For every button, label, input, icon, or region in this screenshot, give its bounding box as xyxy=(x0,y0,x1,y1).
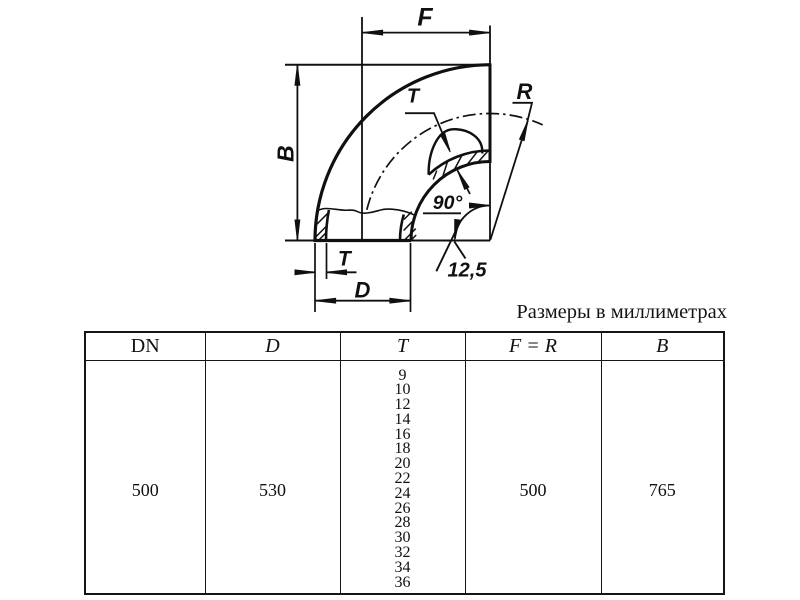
svg-text:T: T xyxy=(338,247,353,270)
svg-text:90°: 90° xyxy=(433,192,463,214)
svg-text:B: B xyxy=(273,145,299,162)
svg-text:T: T xyxy=(407,86,421,108)
svg-text:D: D xyxy=(355,278,371,303)
svg-text:R: R xyxy=(517,79,533,104)
svg-text:F: F xyxy=(417,4,433,32)
svg-text:12,5: 12,5 xyxy=(448,260,488,282)
